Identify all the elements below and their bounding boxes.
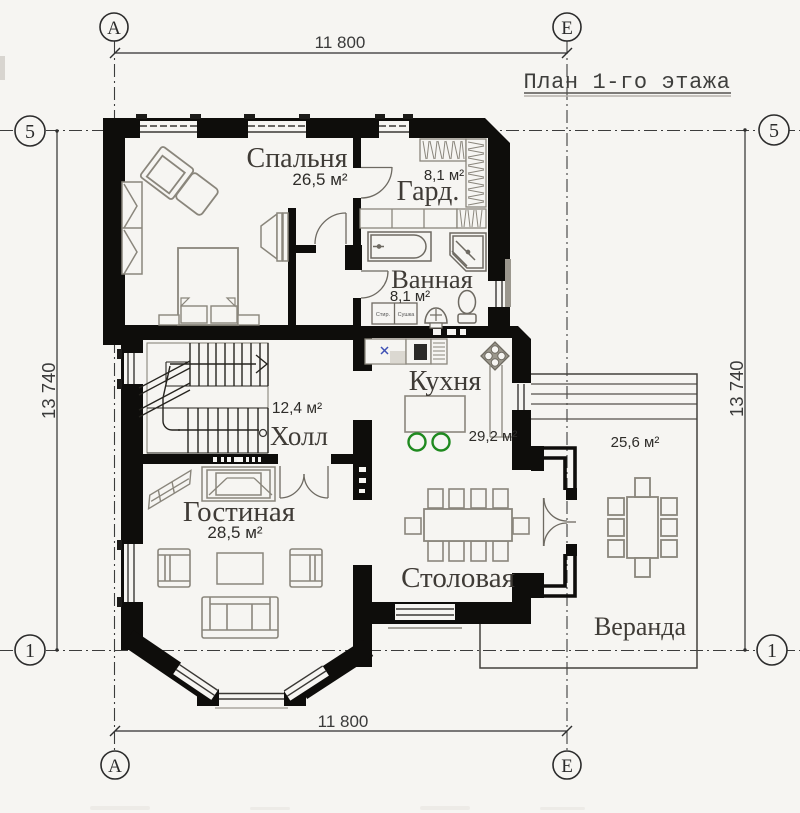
- svg-text:8,1 м²: 8,1 м²: [390, 288, 430, 305]
- svg-text:25,6 м²: 25,6 м²: [611, 434, 660, 451]
- svg-text:11 800: 11 800: [318, 712, 369, 731]
- svg-text:Е: Е: [561, 18, 573, 39]
- svg-text:29,2 м²: 29,2 м²: [469, 428, 518, 445]
- svg-text:5: 5: [25, 121, 35, 143]
- svg-text:План 1-го этажа: План 1-го этажа: [523, 70, 730, 95]
- svg-text:13 740: 13 740: [38, 362, 59, 419]
- svg-text:Столовая: Столовая: [401, 562, 515, 594]
- svg-text:Веранда: Веранда: [594, 612, 687, 641]
- svg-text:А: А: [108, 756, 122, 777]
- svg-text:26,5 м²: 26,5 м²: [292, 170, 347, 189]
- svg-text:Е: Е: [561, 756, 573, 777]
- svg-text:1: 1: [25, 640, 35, 662]
- svg-text:11 800: 11 800: [315, 33, 366, 52]
- svg-text:Кухня: Кухня: [409, 366, 482, 397]
- svg-text:Холл: Холл: [270, 421, 328, 451]
- svg-text:1: 1: [767, 640, 777, 662]
- svg-text:13 740: 13 740: [726, 360, 747, 417]
- svg-text:28,5 м²: 28,5 м²: [207, 523, 262, 542]
- svg-text:А: А: [107, 18, 121, 39]
- svg-text:12,4 м²: 12,4 м²: [272, 400, 322, 417]
- svg-text:Гард.: Гард.: [397, 176, 460, 207]
- svg-text:Стир.: Стир.: [376, 312, 391, 318]
- svg-text:Сушка: Сушка: [398, 312, 416, 318]
- svg-text:5: 5: [769, 120, 779, 142]
